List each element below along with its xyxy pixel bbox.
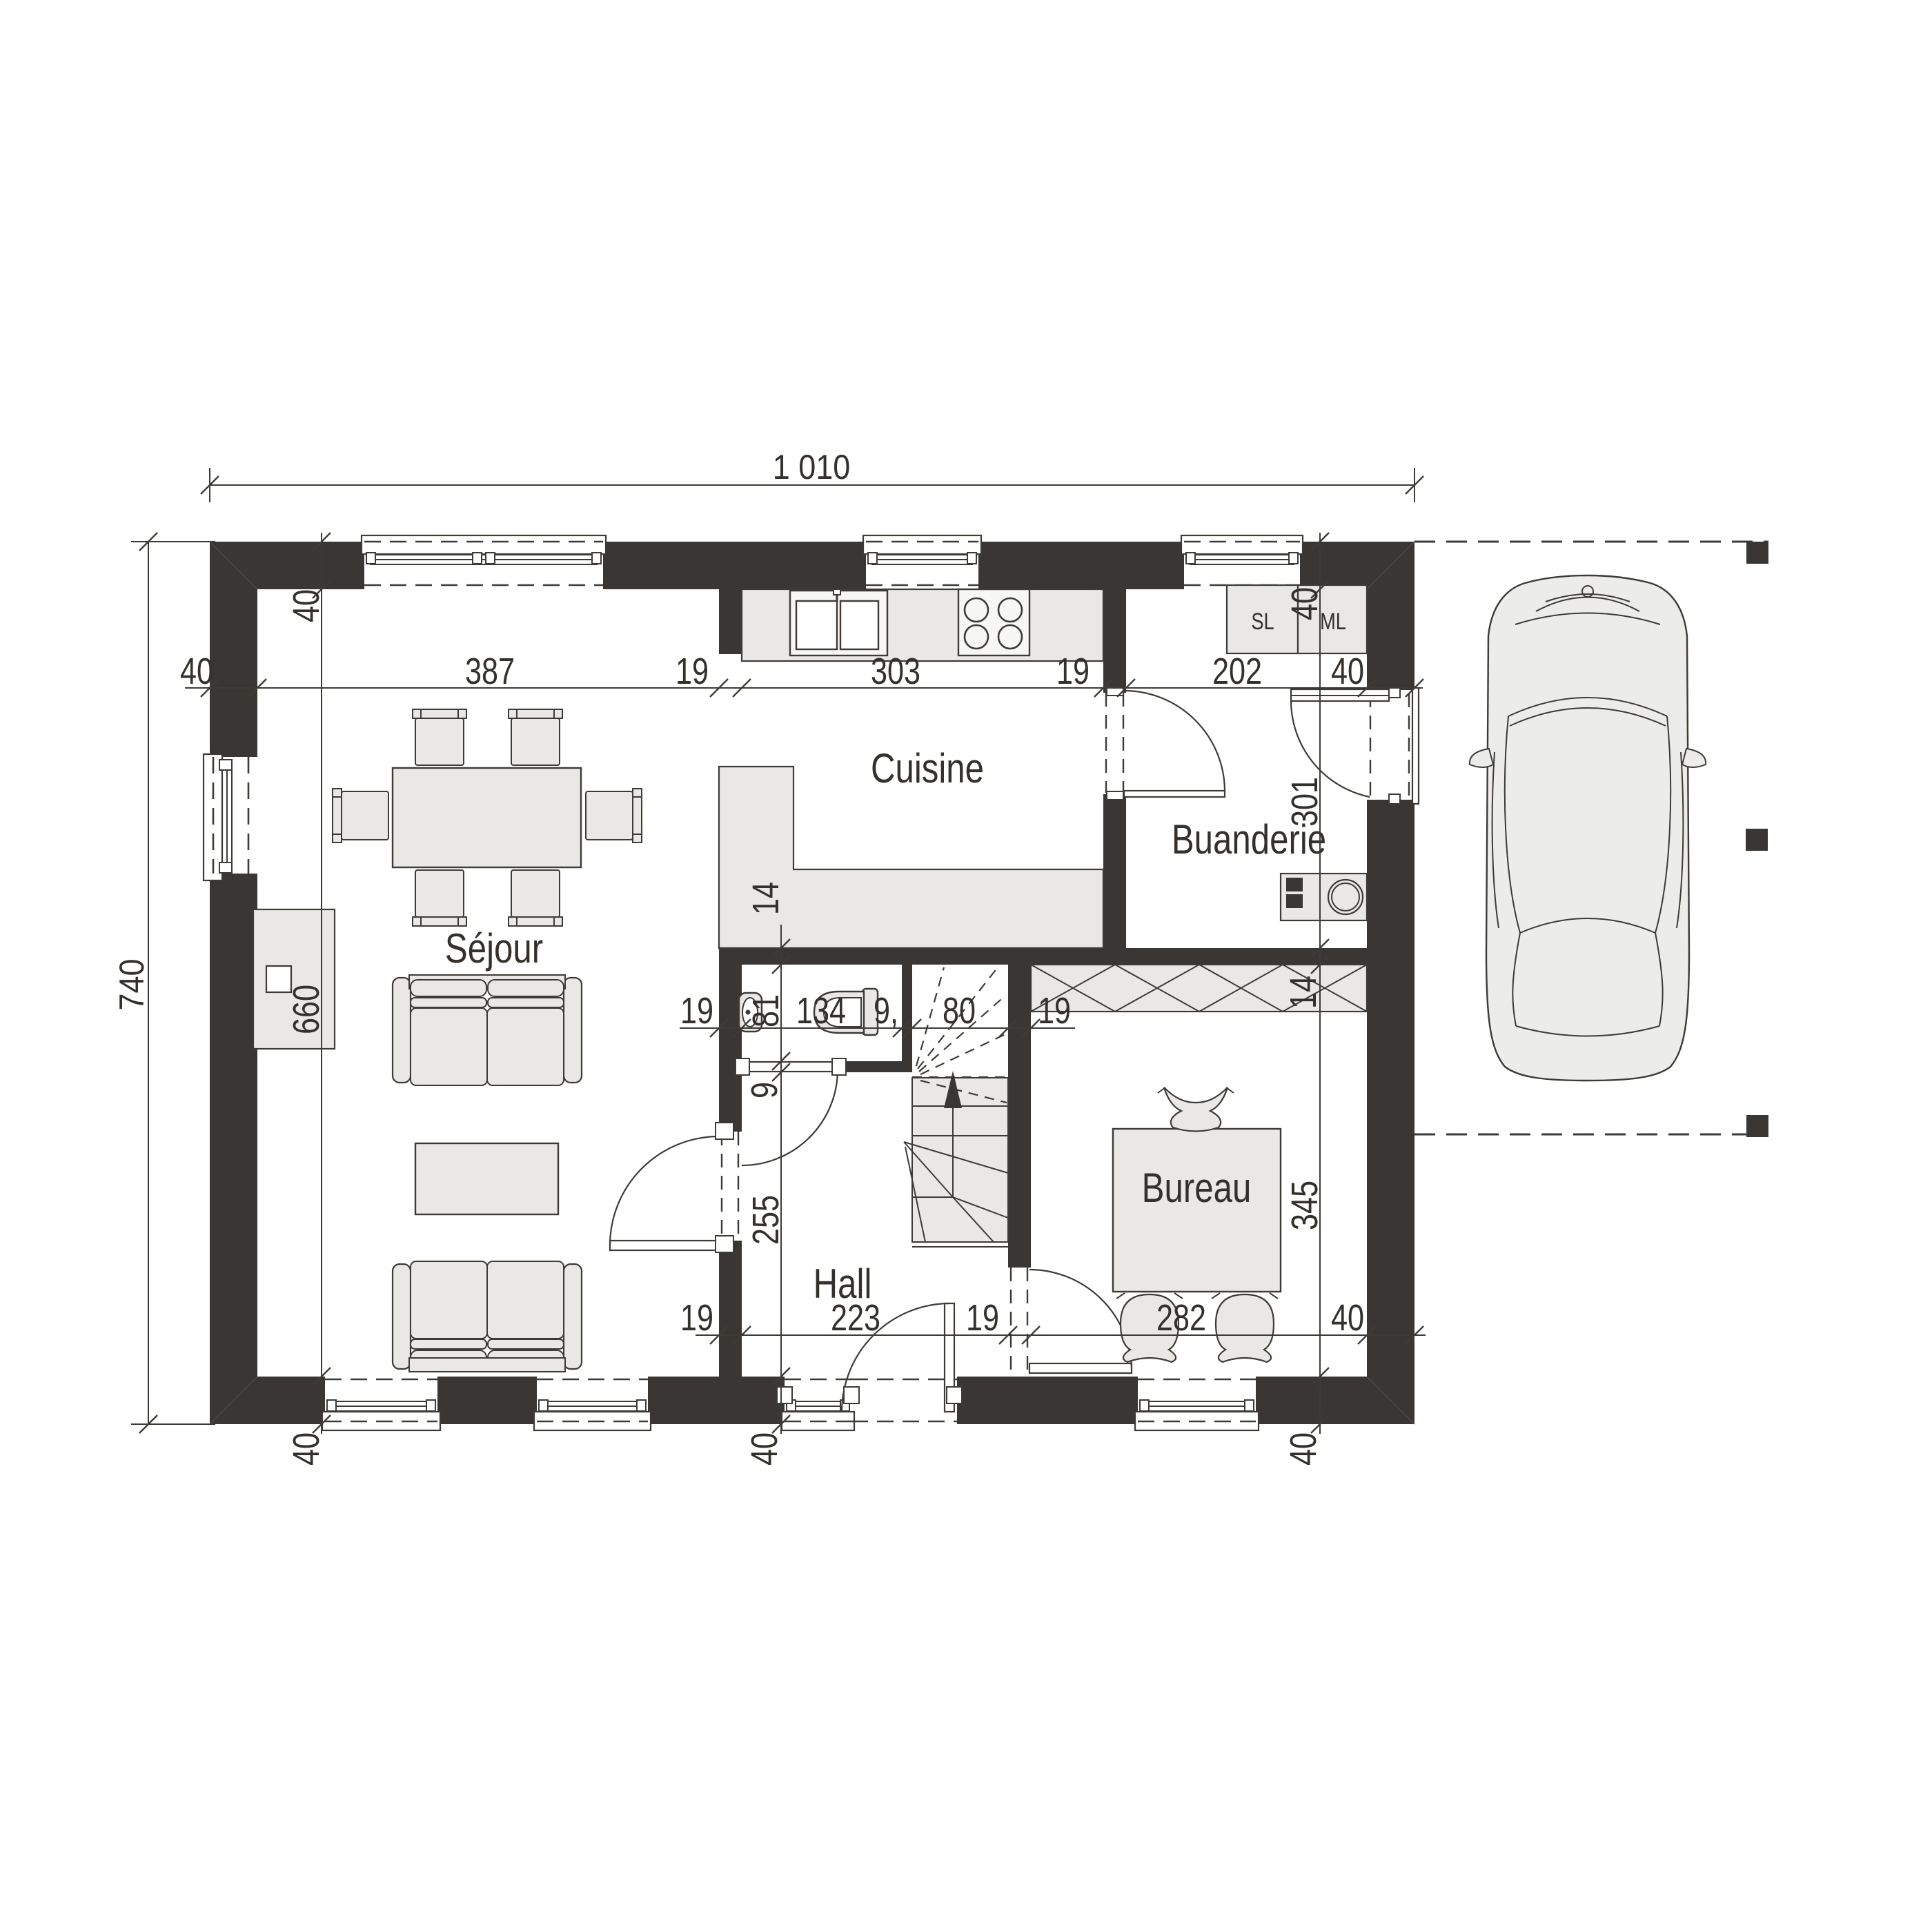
svg-text:19: 19: [680, 991, 713, 1032]
svg-text:134: 134: [796, 991, 846, 1032]
svg-text:SL: SL: [1251, 608, 1274, 635]
svg-text:9,: 9,: [874, 991, 898, 1032]
svg-text:40: 40: [286, 1432, 328, 1466]
svg-text:387: 387: [465, 651, 515, 693]
svg-text:40: 40: [745, 1432, 786, 1466]
svg-text:19: 19: [1038, 991, 1071, 1032]
svg-text:14: 14: [746, 882, 787, 915]
svg-text:Séjour: Séjour: [445, 925, 543, 972]
svg-text:81: 81: [746, 994, 787, 1027]
svg-text:255: 255: [746, 1195, 787, 1245]
svg-text:19: 19: [676, 651, 709, 693]
svg-text:40: 40: [286, 589, 328, 622]
svg-text:80: 80: [943, 991, 976, 1032]
svg-text:223: 223: [831, 1298, 880, 1339]
svg-text:40: 40: [1283, 1432, 1325, 1466]
svg-text:40: 40: [1331, 1298, 1364, 1339]
svg-text:14: 14: [1283, 976, 1325, 1009]
svg-text:303: 303: [871, 651, 920, 693]
svg-text:Cuisine: Cuisine: [871, 745, 984, 791]
svg-text:19: 19: [680, 1298, 713, 1339]
svg-text:19: 19: [1056, 651, 1090, 693]
svg-text:345: 345: [1285, 1181, 1326, 1230]
svg-text:282: 282: [1156, 1298, 1206, 1339]
svg-text:740: 740: [113, 958, 152, 1010]
svg-text:660: 660: [286, 985, 328, 1034]
svg-text:9: 9: [745, 1082, 786, 1098]
svg-text:19: 19: [966, 1298, 999, 1339]
svg-text:40: 40: [180, 651, 213, 693]
svg-text:40: 40: [1285, 587, 1326, 620]
svg-text:1 010: 1 010: [773, 448, 851, 487]
svg-text:301: 301: [1285, 777, 1326, 827]
svg-text:202: 202: [1212, 651, 1262, 693]
svg-text:40: 40: [1331, 651, 1364, 693]
svg-text:Bureau: Bureau: [1142, 1164, 1252, 1211]
